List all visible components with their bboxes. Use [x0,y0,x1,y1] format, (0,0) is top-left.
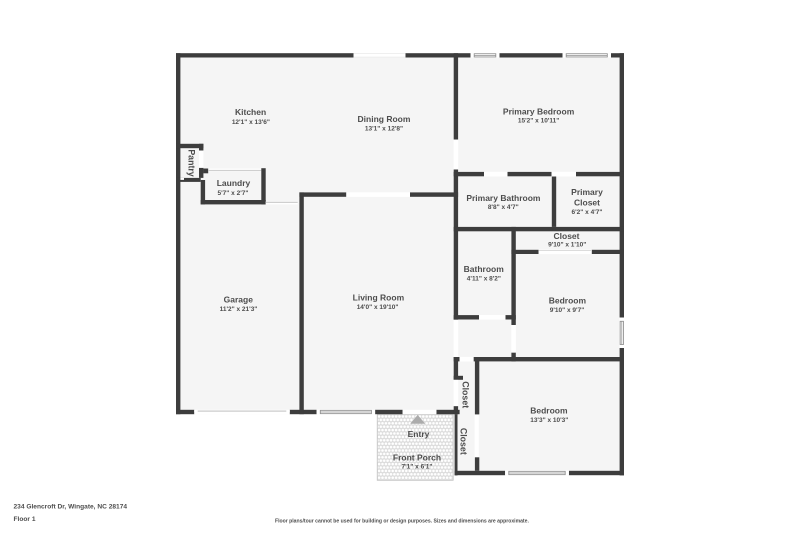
svg-text:15'2" x 10'11": 15'2" x 10'11" [518,118,559,125]
svg-text:Laundry: Laundry [217,178,251,188]
svg-text:Bedroom: Bedroom [530,406,568,416]
svg-text:5'7" x 2'7": 5'7" x 2'7" [218,190,249,197]
svg-text:11'2" x 21'3": 11'2" x 21'3" [220,306,258,313]
svg-text:Front Porch: Front Porch [393,452,441,462]
svg-text:Floor plans/tour cannot be use: Floor plans/tour cannot be used for buil… [275,518,529,524]
svg-text:Bathroom: Bathroom [464,264,505,274]
svg-text:234 Glencroft Dr, Wingate, NC: 234 Glencroft Dr, Wingate, NC 28174 [14,503,128,510]
svg-text:Closet: Closet [460,381,470,408]
svg-text:Closet: Closet [574,198,600,208]
svg-text:9'10" x 1'10": 9'10" x 1'10" [548,241,586,248]
svg-text:Pantry: Pantry [187,149,197,176]
svg-text:4'11" x 8'2": 4'11" x 8'2" [467,275,501,282]
svg-text:13'3" x 10'3": 13'3" x 10'3" [530,417,568,424]
svg-text:9'10" x 9'7": 9'10" x 9'7" [550,307,585,314]
svg-text:6'2" x 4'7": 6'2" x 4'7" [572,209,603,216]
svg-text:8'8" x 4'7": 8'8" x 4'7" [488,204,519,211]
svg-text:Living Room: Living Room [353,293,405,303]
svg-text:Primary Bedroom: Primary Bedroom [503,106,575,116]
svg-text:Floor 1: Floor 1 [14,516,36,523]
svg-text:12'1" x 13'6": 12'1" x 13'6" [232,119,270,126]
svg-text:Primary Bathroom: Primary Bathroom [466,193,541,203]
svg-text:Kitchen: Kitchen [235,107,266,117]
svg-text:13'1" x 12'8": 13'1" x 12'8" [365,126,403,133]
svg-text:Bedroom: Bedroom [549,296,587,306]
svg-text:Garage: Garage [224,295,254,305]
svg-text:Entry: Entry [408,429,430,439]
svg-text:14'0" x 19'10": 14'0" x 19'10" [357,304,399,311]
svg-text:Closet: Closet [459,428,469,455]
svg-text:Primary: Primary [571,187,603,197]
svg-text:7'1" x 6'1": 7'1" x 6'1" [402,463,433,470]
svg-text:Dining Room: Dining Room [358,114,411,124]
svg-text:Closet: Closet [554,231,580,241]
